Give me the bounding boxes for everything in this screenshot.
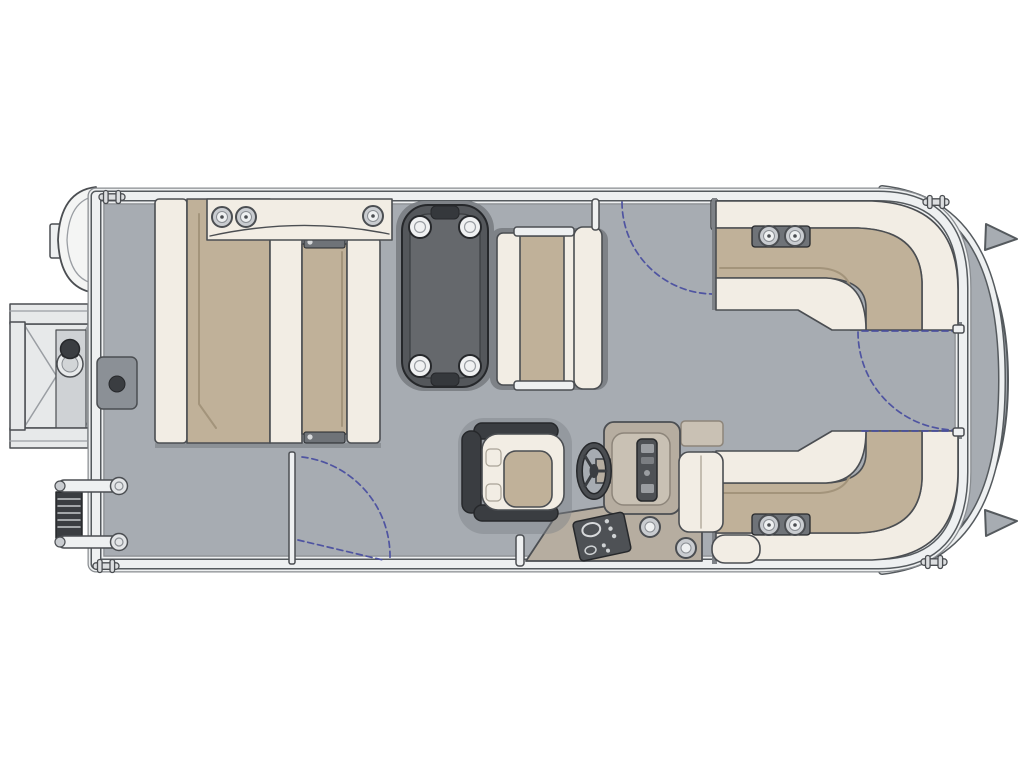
sb-lounge-armrest: [752, 226, 810, 247]
captains-chair: [458, 418, 572, 534]
floor-plan-canvas: [0, 0, 1024, 768]
instrument-cluster: [637, 439, 657, 501]
exterior-port-fixtures: [10, 187, 96, 448]
chair-cushion-insert: [504, 451, 552, 507]
swim-platform: [10, 304, 88, 448]
fence-post-top-left: [592, 199, 599, 230]
bow-armrest-console: [207, 199, 392, 240]
pontoon-floor-plan: [0, 0, 1024, 768]
port-gate-divider: [289, 452, 295, 564]
chaise-footrest: [270, 238, 302, 443]
deck-latch-pad: [97, 357, 137, 409]
nose-fin-bottom: [985, 510, 1017, 536]
pb-lounge-end-cap: [712, 535, 760, 563]
chaise-back-left: [155, 199, 187, 443]
companion-bench: [490, 227, 608, 390]
chaise-back-right: [347, 238, 380, 443]
fence-post-bottom: [516, 535, 524, 566]
chair-wrap-back: [462, 431, 481, 513]
facing-chaise-lounges: [155, 199, 392, 448]
cocktail-table: [396, 201, 494, 391]
pb-lounge-armrest: [752, 514, 810, 535]
console-cupholder-1: [212, 207, 232, 227]
ski-tow-pylon: [57, 340, 83, 378]
console-raised-box: [681, 421, 723, 446]
nose-fin-top: [985, 224, 1017, 250]
console-cupholder-2: [236, 207, 256, 227]
console-cupholder-3: [363, 206, 383, 226]
bench-backrest: [574, 227, 602, 389]
chaise-seat-right: [302, 244, 347, 434]
